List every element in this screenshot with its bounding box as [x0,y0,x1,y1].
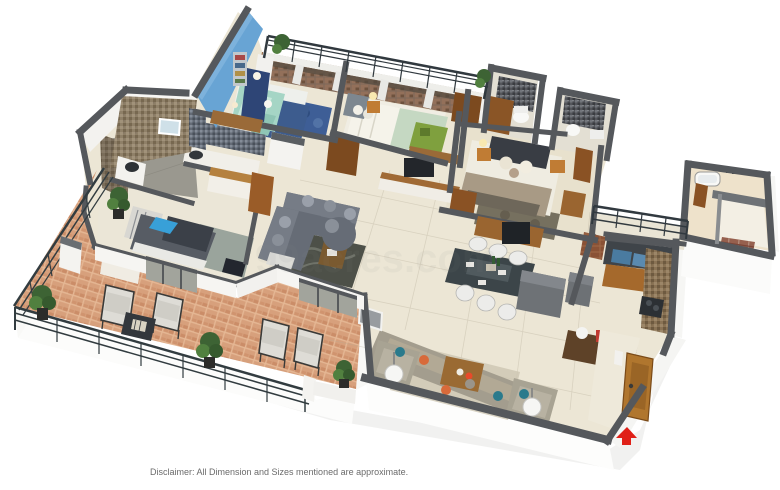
svg-text:99acres.com: 99acres.com [255,237,497,281]
svg-text:Disclaimer: All Dimension and: Disclaimer: All Dimension and Sizes ment… [150,467,408,477]
